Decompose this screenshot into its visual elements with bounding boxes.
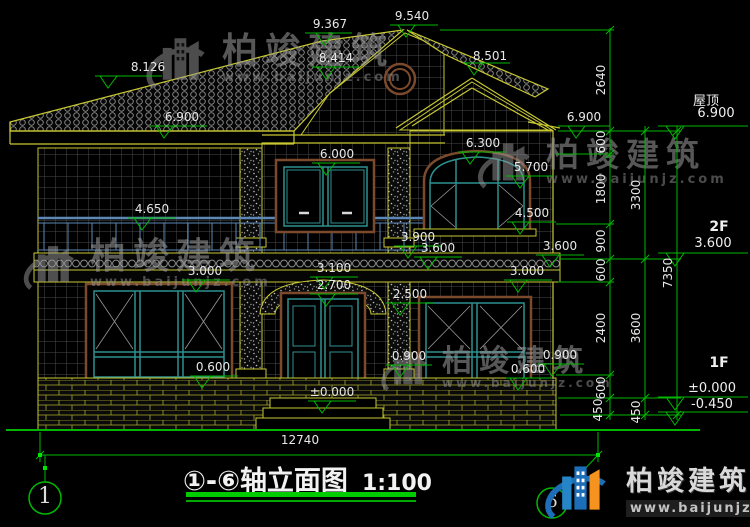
elevation-marker-label: 4.650 bbox=[135, 202, 169, 216]
elevation-marker-label: ±0.000 bbox=[310, 385, 354, 399]
dimension-lines bbox=[29, 25, 748, 518]
chain-dim: 1800 bbox=[594, 174, 608, 205]
overall-width-dimension: 12740 bbox=[281, 433, 319, 447]
title-underline-thick bbox=[186, 492, 416, 497]
chain-dim: 600 bbox=[594, 259, 608, 282]
elevation-marker-label: 4.500 bbox=[515, 206, 549, 220]
chain-dim: 3600 bbox=[629, 313, 643, 344]
floor2-label: 2F bbox=[709, 219, 728, 235]
elevation-marker-label: 6.900 bbox=[165, 110, 199, 124]
chain-dim: 2400 bbox=[594, 313, 608, 344]
floor1-zero-value: ±0.000 bbox=[688, 381, 736, 396]
floor1-below-value: -0.450 bbox=[691, 397, 733, 412]
elevation-marker-label: 9.540 bbox=[395, 9, 429, 23]
brand-footer: 柏竣建筑 www.baijunjz.com bbox=[540, 452, 750, 524]
brand-logo-icon bbox=[540, 452, 616, 524]
elevation-marker-label: 8.414 bbox=[319, 51, 353, 65]
elevation-marker-label: 0.900 bbox=[392, 349, 426, 363]
elevation-marker-label: 0.600 bbox=[196, 360, 230, 374]
elevation-marker-label: 2.500 bbox=[393, 287, 427, 301]
chain-dim: 600 bbox=[594, 131, 608, 154]
elevation-marker-label: 0.600 bbox=[511, 362, 545, 376]
elevation-marker-label: 0.900 bbox=[543, 348, 577, 362]
chain-dim: 3300 bbox=[629, 180, 643, 211]
elevation-marker-label: 3.100 bbox=[317, 261, 351, 275]
elevation-marker-label: 6.900 bbox=[567, 110, 601, 124]
chain-dim: 600 bbox=[594, 377, 608, 400]
brand-name: 柏竣建筑 bbox=[626, 459, 750, 498]
elevation-marker-label: 5.700 bbox=[514, 160, 548, 174]
title-underline-thin bbox=[186, 500, 416, 502]
chain-dim: 900 bbox=[594, 230, 608, 253]
elevation-marker-label: 3.000 bbox=[188, 264, 222, 278]
brand-url: www.baijunjz.com bbox=[626, 500, 750, 517]
dimension-overlay bbox=[0, 0, 750, 527]
elevation-marker-label: 3.000 bbox=[510, 264, 544, 278]
chain-dim: 7350 bbox=[661, 258, 675, 289]
cad-elevation-screen: 柏竣建筑 www.baijunjz.com 柏竣建筑 www.baijunjz.… bbox=[0, 0, 750, 527]
chain-dim: 2640 bbox=[594, 65, 608, 96]
elevation-marker-label: 6.000 bbox=[320, 147, 354, 161]
axis-number-1: 1 bbox=[38, 484, 52, 509]
chain-dim: 450 bbox=[591, 399, 605, 422]
chain-dim: 450 bbox=[629, 401, 643, 424]
elevation-marker-label: 8.501 bbox=[473, 49, 507, 63]
elevation-marker-label: 9.367 bbox=[313, 17, 347, 31]
floor2-value: 3.600 bbox=[694, 236, 731, 251]
elevation-marker-label: 3.600 bbox=[543, 239, 577, 253]
elevation-marker-label: 2.700 bbox=[317, 278, 351, 292]
elevation-marker-label: 6.300 bbox=[466, 136, 500, 150]
floor1-label: 1F bbox=[709, 355, 728, 371]
elevation-marker-label: 8.126 bbox=[131, 60, 165, 74]
roof-level-value: 6.900 bbox=[697, 106, 734, 121]
elevation-marker-label: 3.600 bbox=[421, 241, 455, 255]
